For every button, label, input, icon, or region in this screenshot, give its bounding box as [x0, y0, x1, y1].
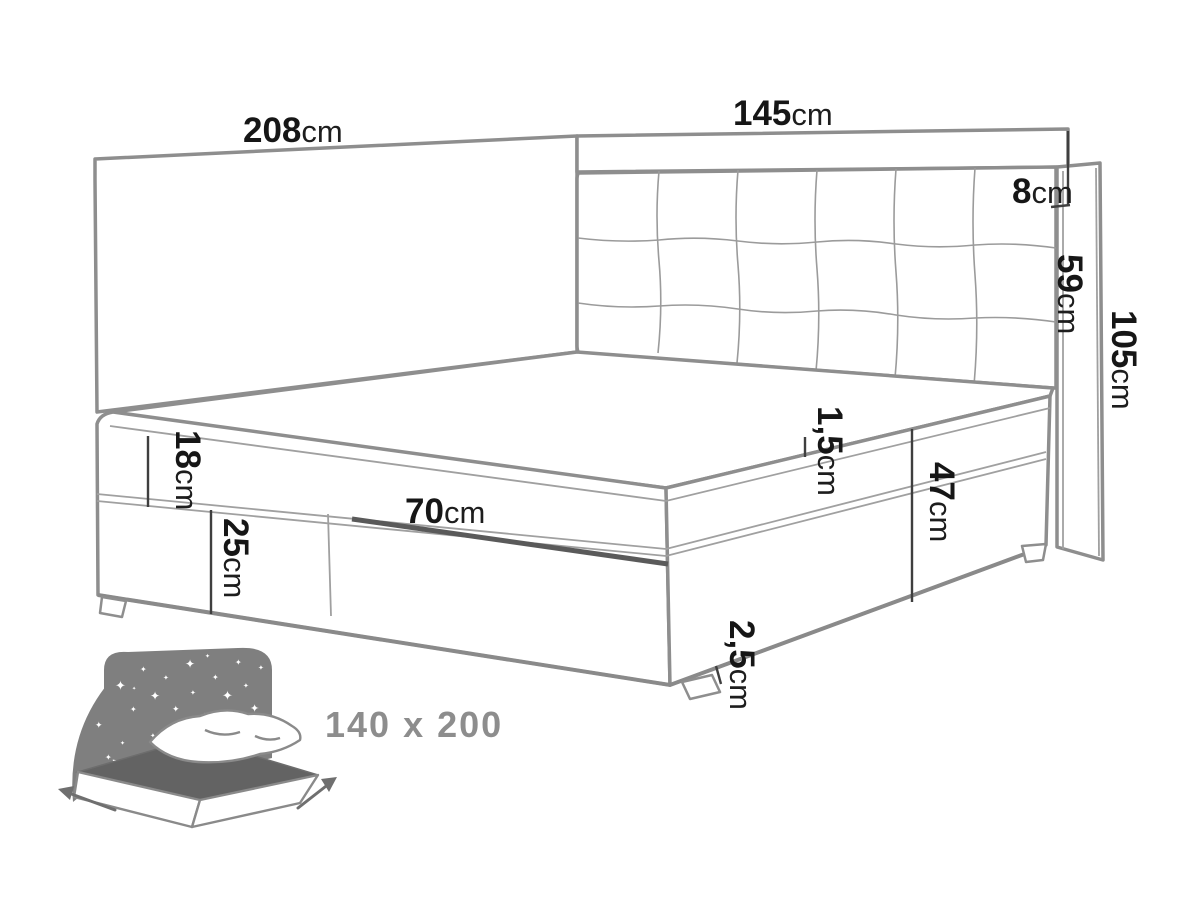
- rear-top-strip: [577, 129, 1068, 172]
- product-dimension-image: 208cm 145cm 8cm 59cm 105cm 18cm 25cm 70c…: [0, 0, 1200, 900]
- dim-label-47: 47cm: [922, 462, 961, 542]
- bed-leg-right: [1022, 544, 1046, 562]
- svg-text:✦: ✦: [190, 689, 196, 697]
- headboard: [577, 167, 1056, 388]
- svg-text:✦: ✦: [243, 682, 249, 690]
- dim-label-105: 105cm: [1104, 310, 1143, 410]
- dim-label-59: 59cm: [1050, 254, 1089, 334]
- svg-text:✦: ✦: [205, 653, 210, 660]
- svg-text:✦: ✦: [95, 721, 103, 731]
- svg-text:✦: ✦: [132, 686, 136, 692]
- svg-text:✦: ✦: [105, 753, 112, 762]
- dim-label-145: 145cm: [733, 94, 833, 133]
- bed-size-label: 140 x 200: [325, 704, 503, 745]
- dim-label-70: 70cm: [405, 492, 485, 531]
- svg-text:✦: ✦: [163, 674, 169, 682]
- dim-label-18: 18cm: [168, 430, 207, 510]
- svg-text:✦: ✦: [185, 657, 195, 671]
- dim-label-1-5: 1,5cm: [810, 406, 849, 496]
- svg-text:✦: ✦: [140, 665, 147, 674]
- svg-text:✦: ✦: [150, 689, 160, 703]
- dim-label-8: 8cm: [1012, 172, 1073, 211]
- svg-text:✦: ✦: [120, 740, 125, 747]
- svg-text:✦: ✦: [222, 689, 233, 704]
- svg-text:✦: ✦: [115, 679, 126, 694]
- bed-leg-left: [100, 597, 126, 617]
- dim-label-208: 208cm: [243, 111, 343, 150]
- dim-label-25: 25cm: [216, 518, 255, 598]
- bed-diagram: 208cm 145cm 8cm 59cm 105cm 18cm 25cm 70c…: [0, 0, 1200, 900]
- svg-text:✦: ✦: [130, 705, 137, 714]
- svg-text:✦: ✦: [172, 705, 180, 715]
- svg-text:✦: ✦: [235, 658, 242, 667]
- dim-label-2-5: 2,5cm: [722, 620, 761, 710]
- svg-text:✦: ✦: [258, 664, 264, 672]
- svg-text:✦: ✦: [212, 673, 219, 682]
- bed-size-icon: ✦ ✦ ✦ ✦ ✦ ✦ ✦ ✦ ✦ ✦ ✦ ✦ ✦ ✦ ✦ ✦ ✦ ✦ ✦ ✦ …: [58, 648, 337, 827]
- headboard-panel: [577, 167, 1056, 388]
